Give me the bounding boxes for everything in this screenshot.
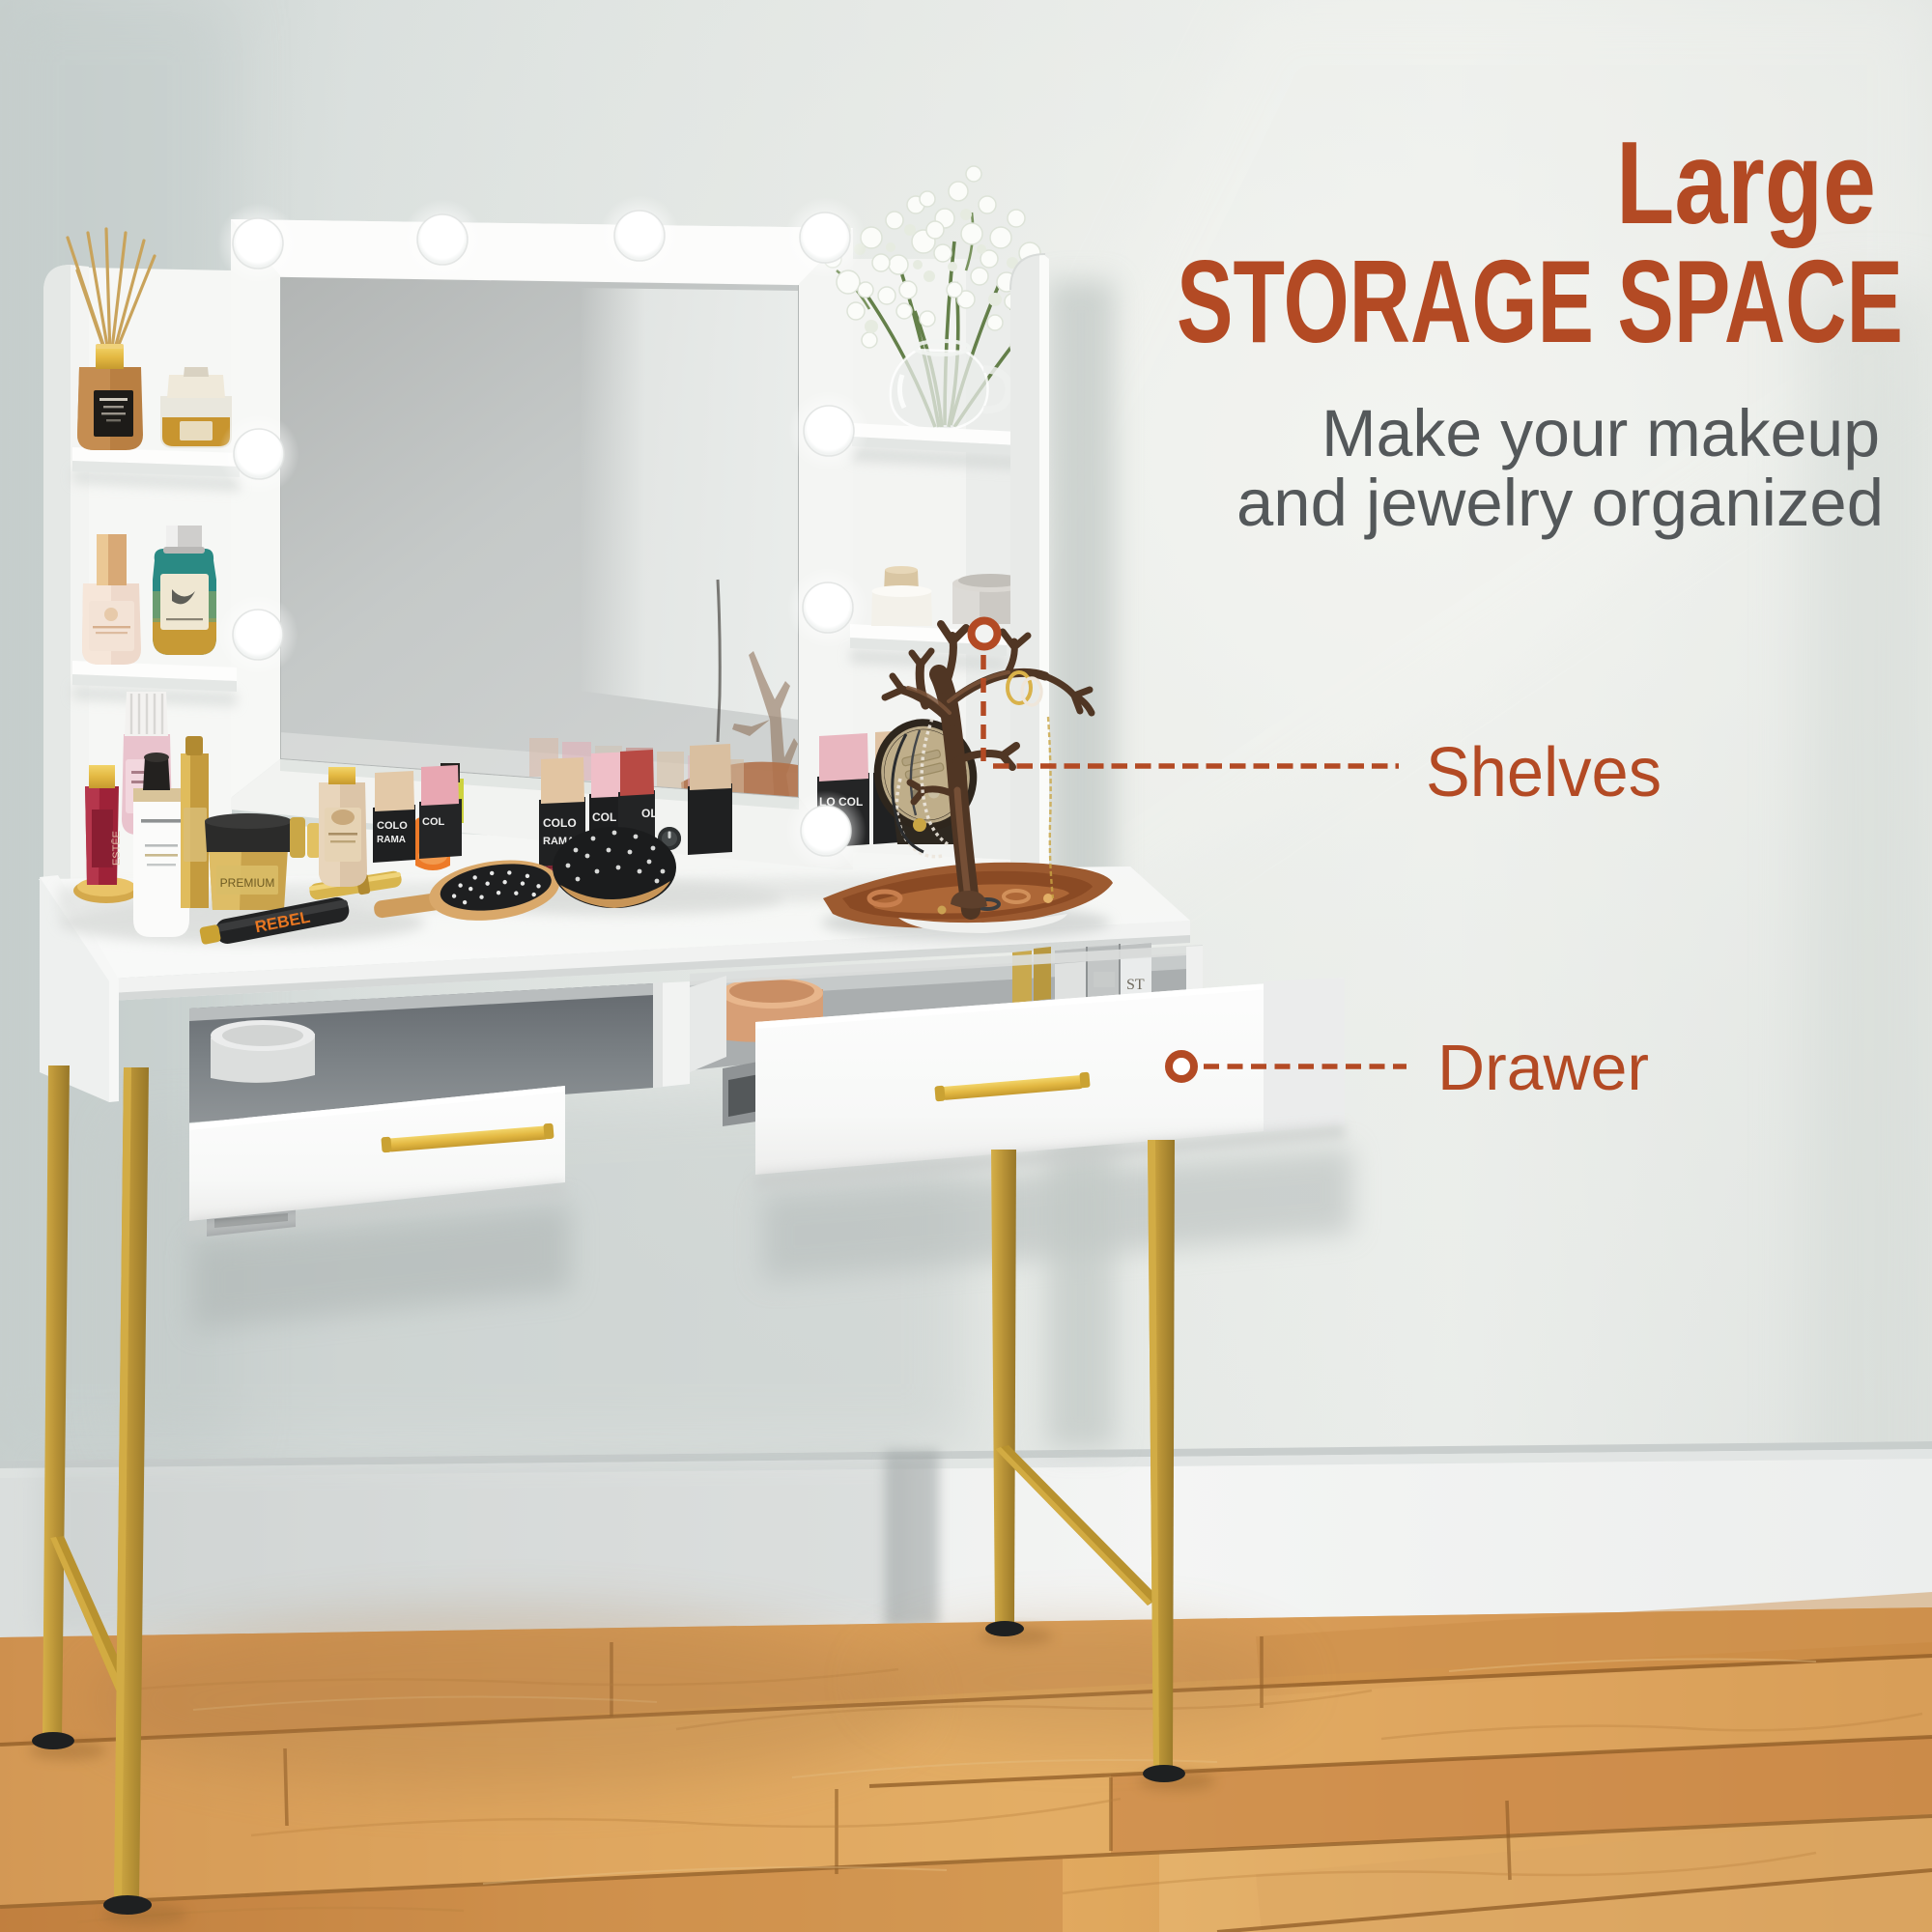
svg-text:COL: COL [592, 810, 616, 824]
svg-text:Large: Large [1616, 117, 1876, 248]
svg-text:STORAGE SPACE: STORAGE SPACE [1177, 236, 1903, 367]
svg-text:ST: ST [1126, 977, 1145, 993]
svg-text:OL: OL [641, 807, 658, 820]
svg-text:COL: COL [422, 816, 445, 828]
svg-text:COLO: COLO [377, 820, 408, 832]
svg-text:Drawer: Drawer [1437, 1032, 1649, 1104]
svg-text:RAMA: RAMA [377, 835, 406, 845]
svg-text:PREMIUM: PREMIUM [220, 876, 275, 890]
svg-text:COLO: COLO [543, 816, 577, 830]
svg-text:Make your makeup: Make your makeup [1321, 396, 1880, 470]
svg-text:Shelves: Shelves [1426, 734, 1662, 811]
svg-text:ESTĒE: ESTĒE [111, 831, 123, 866]
svg-text:and jewelry organized: and jewelry organized [1236, 466, 1884, 540]
